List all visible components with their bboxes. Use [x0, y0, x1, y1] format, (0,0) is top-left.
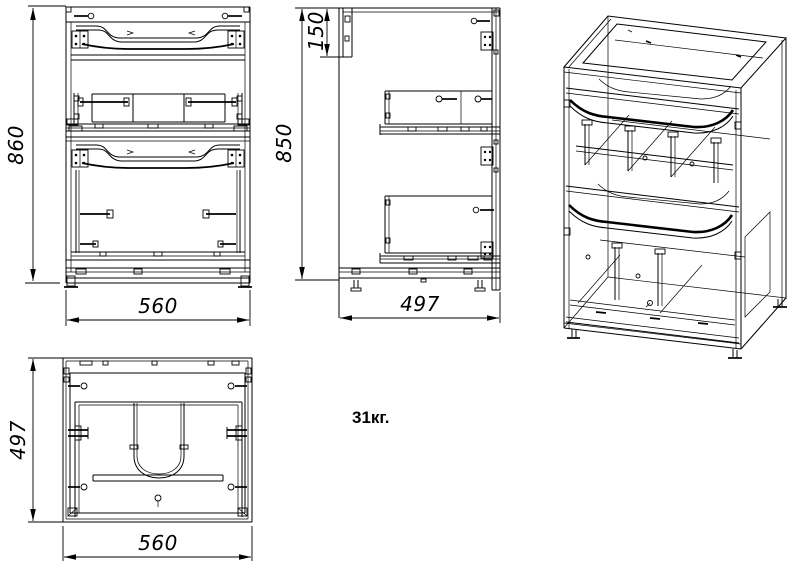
- dimension-front-width: 560: [66, 290, 250, 326]
- dimension-top-depth: 497: [6, 358, 63, 522]
- dimension-side-recess: 150: [304, 9, 343, 57]
- top-view: 497 560: [6, 358, 252, 561]
- front-drawer2-internals: [76, 170, 240, 253]
- front-drawer1-internals: [66, 93, 250, 141]
- side-outline: [295, 8, 500, 318]
- weight-label: 31кг.: [352, 408, 390, 427]
- dimension-side-depth: 497: [340, 292, 500, 323]
- technical-drawing-canvas: 860 560: [0, 0, 800, 569]
- top-cross-bar: [68, 475, 247, 516]
- iso-drawer2-handle: [569, 184, 732, 238]
- front-drawer2-handle: [72, 145, 244, 168]
- dim-label-150: 150: [304, 11, 328, 51]
- dim-label-860: 860: [4, 125, 28, 165]
- dimension-front-height: 860: [4, 6, 66, 283]
- dim-label-497-side: 497: [400, 292, 440, 316]
- top-inner-frame: [75, 402, 242, 517]
- front-view: 860 560: [4, 6, 252, 326]
- isometric-view: [564, 16, 787, 358]
- side-bottom-assembly: [339, 268, 500, 282]
- top-outline: [63, 358, 252, 522]
- dim-label-560-top: 560: [138, 531, 178, 555]
- dim-label-560-front: 560: [138, 294, 178, 318]
- side-view: 150 850 497: [272, 8, 500, 323]
- dimension-top-width: 560: [63, 526, 252, 561]
- top-sink-cutout: [130, 403, 188, 478]
- dim-label-850: 850: [272, 123, 296, 163]
- front-drawer1-handle: [71, 26, 245, 60]
- iso-carcass: [564, 16, 786, 349]
- side-drawer2-box: [380, 196, 500, 263]
- front-bottom-assembly: [66, 252, 250, 283]
- cabinet-drawing: 860 560: [0, 0, 800, 569]
- side-feet: [351, 280, 485, 291]
- dim-label-497-top: 497: [6, 420, 30, 460]
- side-drawer1-box: [380, 91, 500, 135]
